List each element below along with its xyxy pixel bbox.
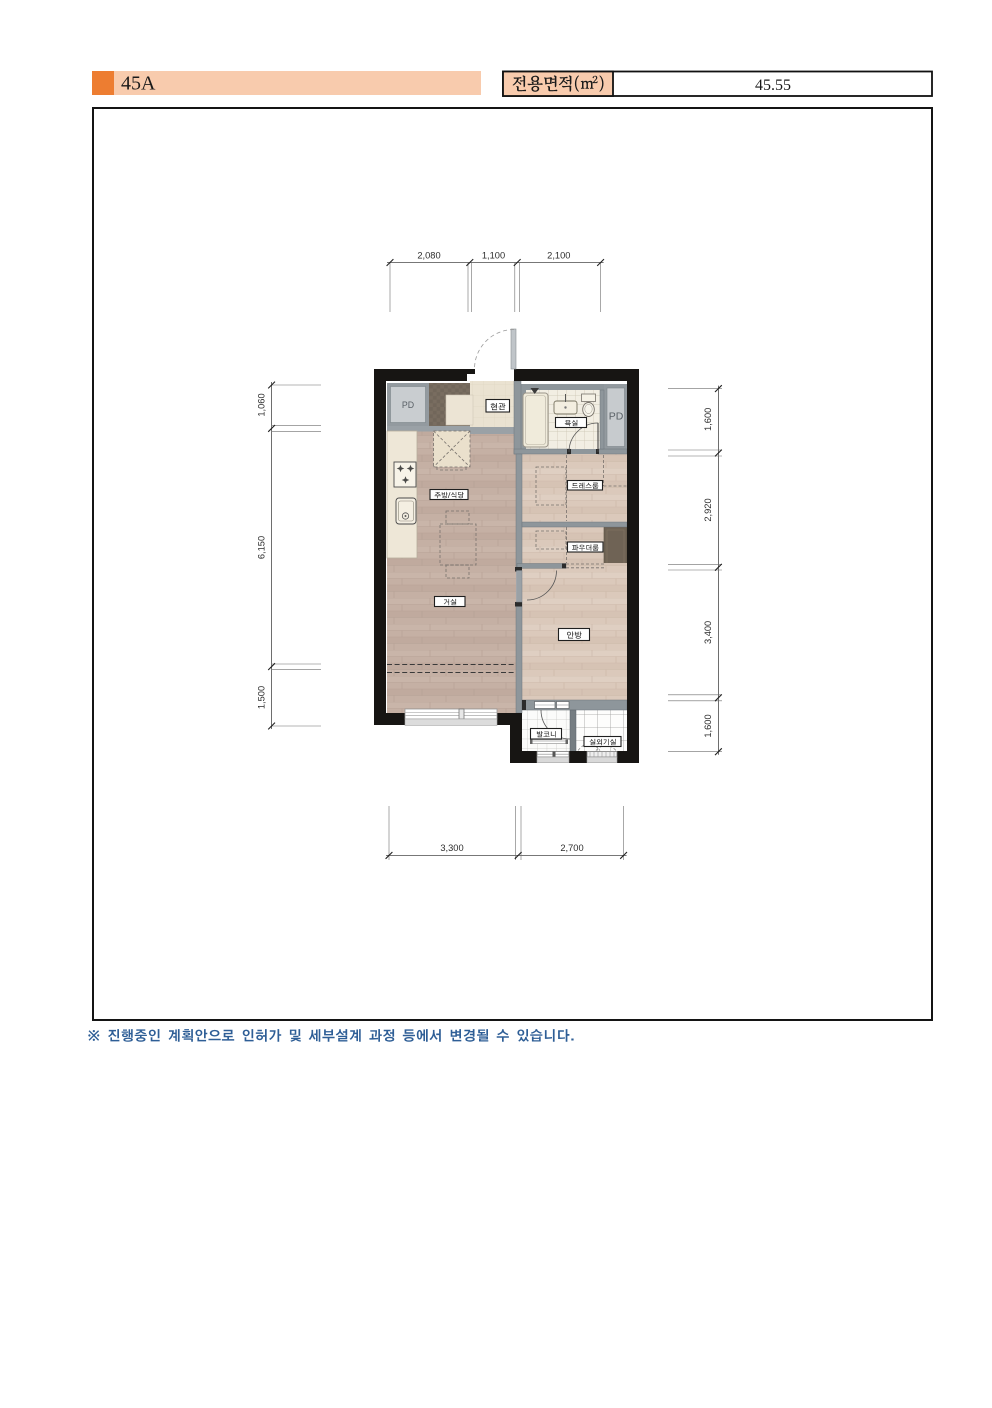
svg-text:1,600: 1,600: [703, 714, 713, 737]
svg-text:2,700: 2,700: [560, 843, 583, 853]
svg-text:1,100: 1,100: [482, 251, 505, 261]
svg-text:45A: 45A: [121, 73, 156, 95]
svg-text:PD: PD: [402, 400, 414, 410]
svg-text:2,920: 2,920: [703, 498, 713, 521]
svg-text:1,500: 1,500: [256, 686, 266, 709]
svg-text:1,060: 1,060: [256, 393, 266, 416]
svg-text:45.55: 45.55: [755, 77, 791, 94]
svg-text:1,600: 1,600: [703, 408, 713, 431]
svg-text:PD: PD: [609, 411, 624, 423]
svg-text:3,300: 3,300: [440, 843, 463, 853]
svg-text:3,400: 3,400: [703, 621, 713, 644]
svg-text:6,150: 6,150: [256, 536, 266, 559]
svg-text:2,100: 2,100: [547, 251, 570, 261]
svg-text:2,080: 2,080: [417, 251, 440, 261]
